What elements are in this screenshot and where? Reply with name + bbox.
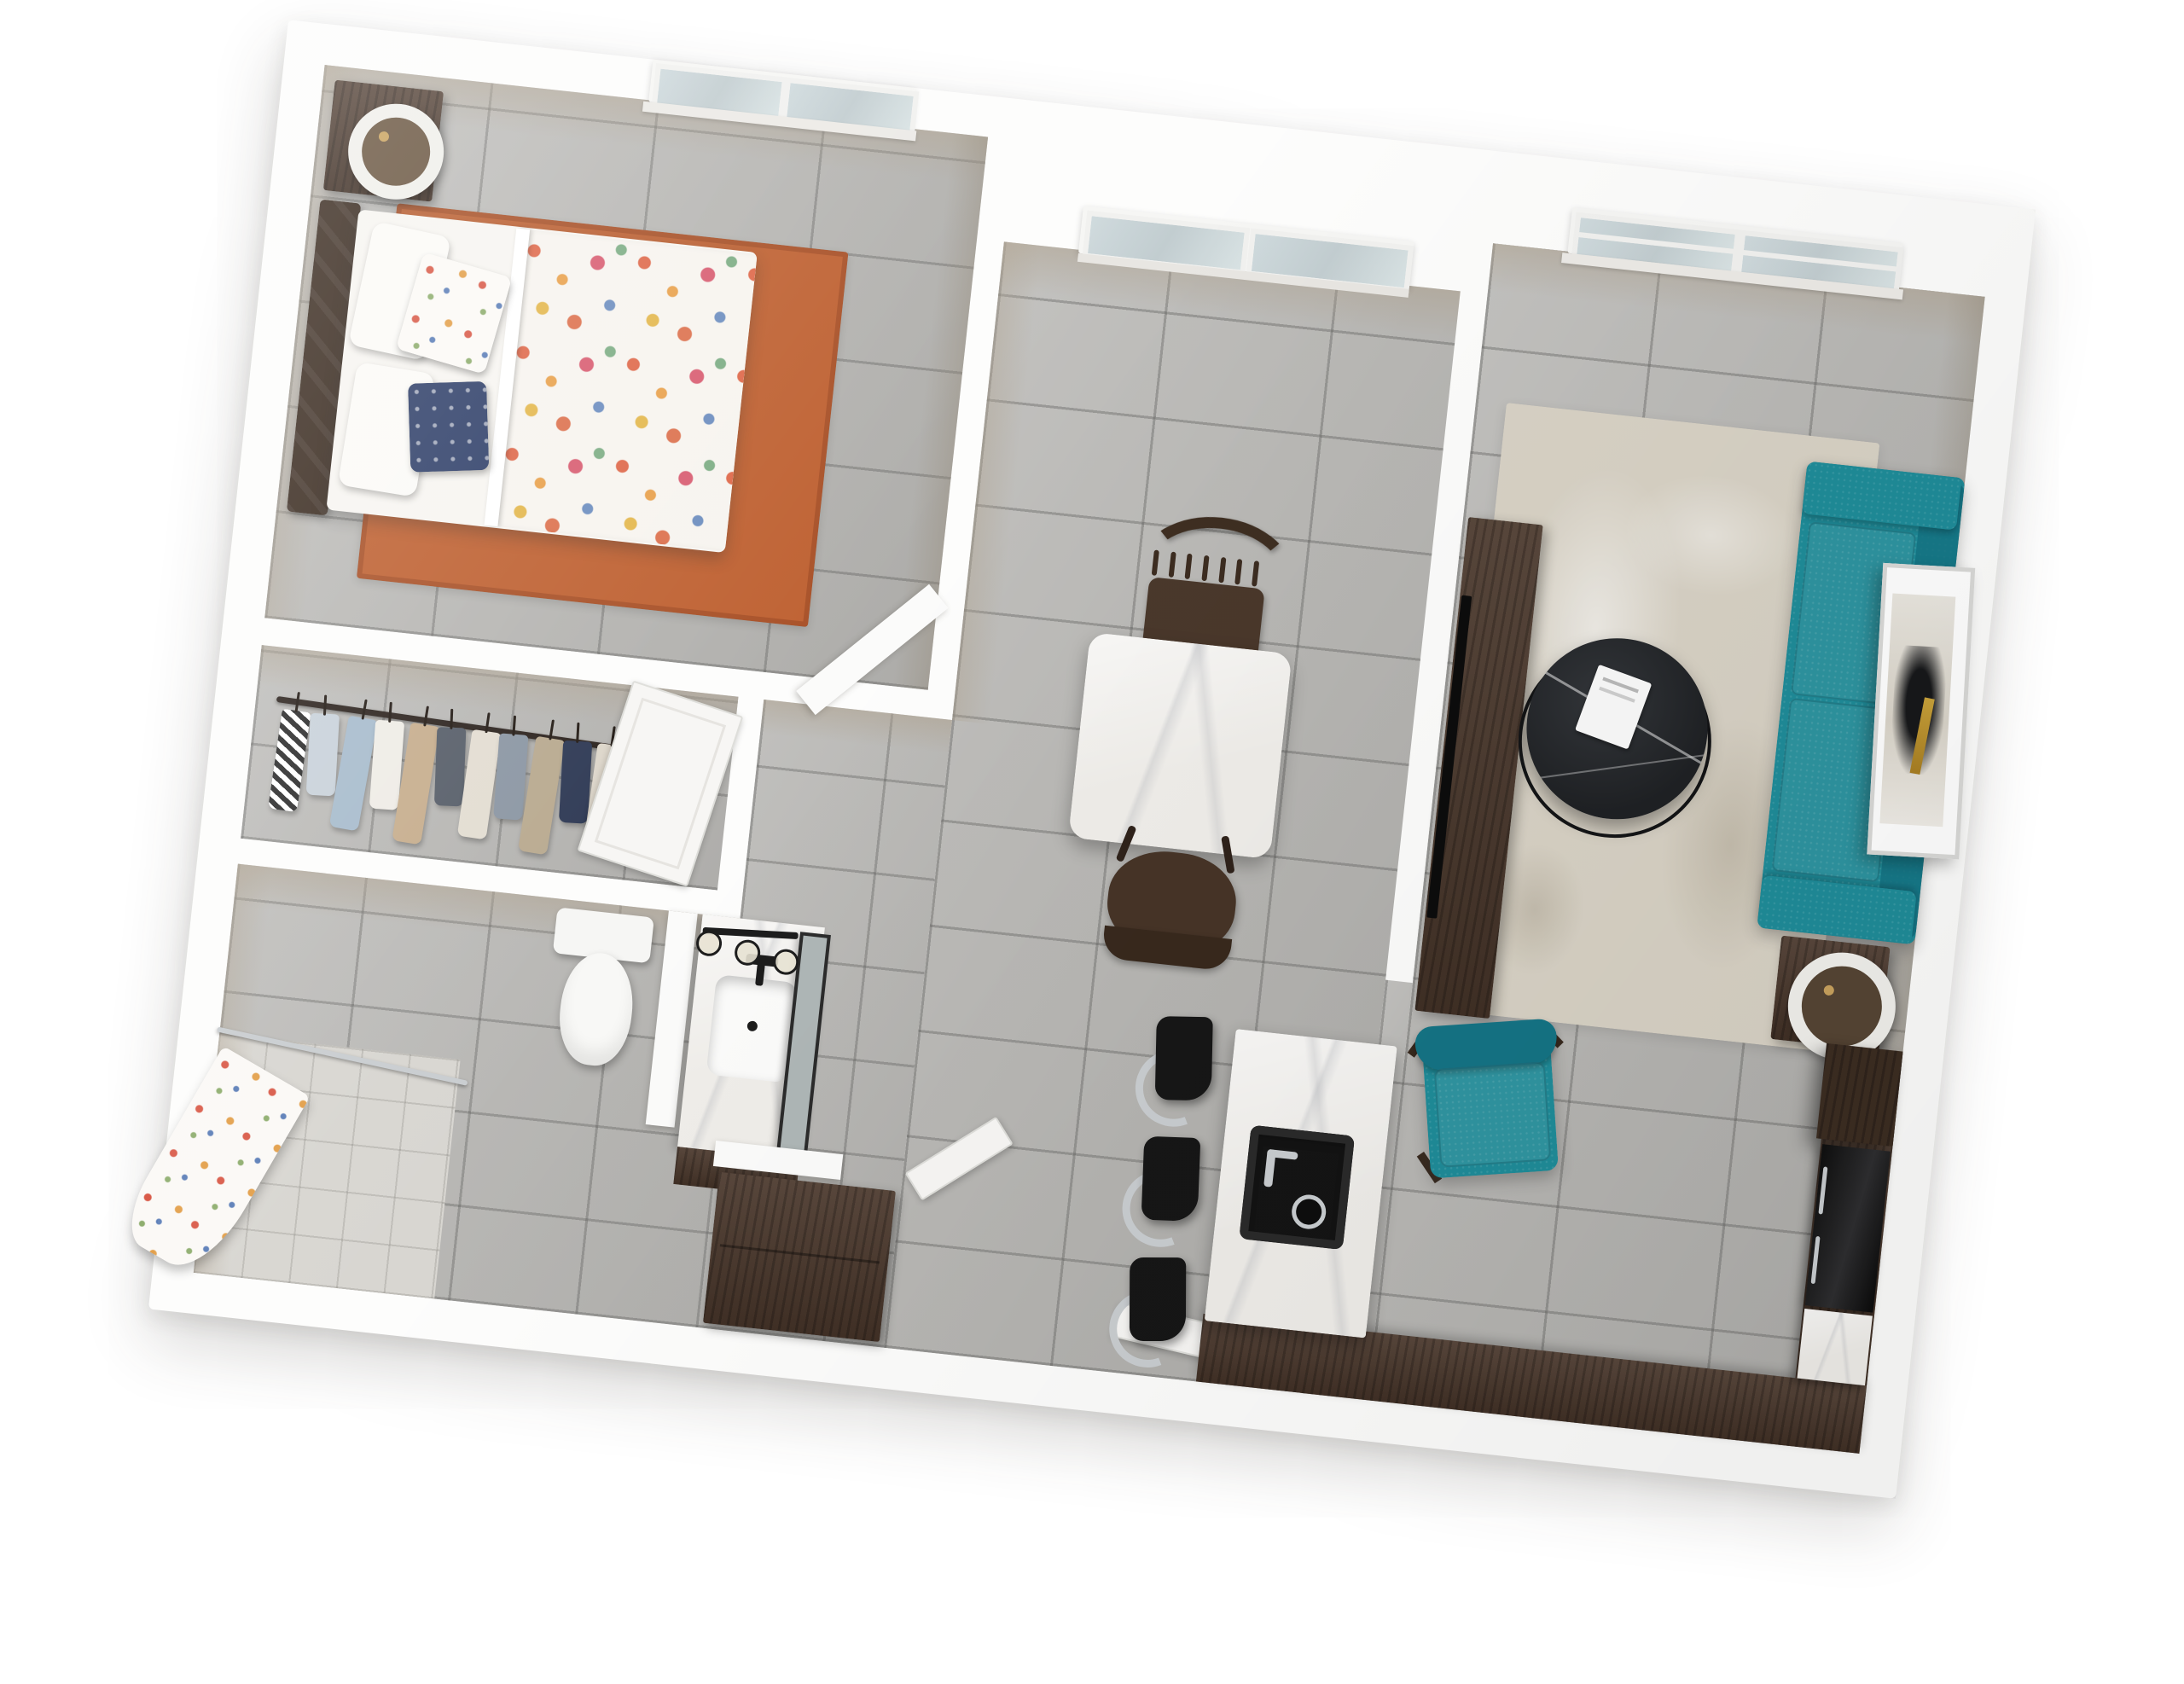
hanger-hook <box>485 712 491 733</box>
appliance-handle <box>1811 1236 1821 1284</box>
hanger-hook <box>423 706 429 726</box>
bar-stool <box>1137 1013 1224 1123</box>
clothing-item <box>434 727 467 806</box>
chair-spindle <box>1234 559 1242 584</box>
stool-seat <box>1155 1016 1213 1100</box>
kitchen-tall-cabinet <box>1816 1043 1903 1147</box>
hanger-hook <box>362 700 368 720</box>
chair-spindle <box>1201 555 1209 581</box>
stool-seat <box>1130 1257 1186 1341</box>
bar-stool <box>1124 1133 1211 1243</box>
accent-chair <box>1409 1014 1571 1188</box>
hanger-hook <box>576 723 579 743</box>
kitchen-marble-section <box>1797 1309 1872 1385</box>
hanger-hook <box>388 702 392 723</box>
floorplan-scene <box>0 0 2184 1684</box>
clothing-item <box>493 733 528 820</box>
island-sink <box>1239 1125 1355 1250</box>
marble-vein <box>1518 752 1717 783</box>
chair-spindle <box>1218 557 1226 583</box>
dresser-drawer-line <box>720 1244 880 1263</box>
hanger-hook <box>549 719 555 740</box>
entry-dresser <box>703 1172 896 1342</box>
hanger-hook <box>450 709 454 729</box>
accent-chair-cushion <box>1434 1061 1551 1167</box>
dining-table <box>1068 632 1292 859</box>
hanger-hook <box>513 716 517 736</box>
clothing-item <box>306 713 340 797</box>
apartment-plan <box>148 20 2036 1499</box>
hanger-hook <box>295 692 300 712</box>
bed-floral-duvet <box>491 229 757 551</box>
chair-spindle <box>1168 552 1176 578</box>
stool-seat <box>1141 1136 1201 1222</box>
appliance-handle <box>1818 1166 1827 1214</box>
wall-art <box>1867 563 1975 859</box>
bed-pillow-navy <box>408 381 489 473</box>
chair-spindle <box>1185 554 1193 579</box>
bar-stool <box>1112 1253 1199 1363</box>
hanger-hook <box>323 695 327 716</box>
